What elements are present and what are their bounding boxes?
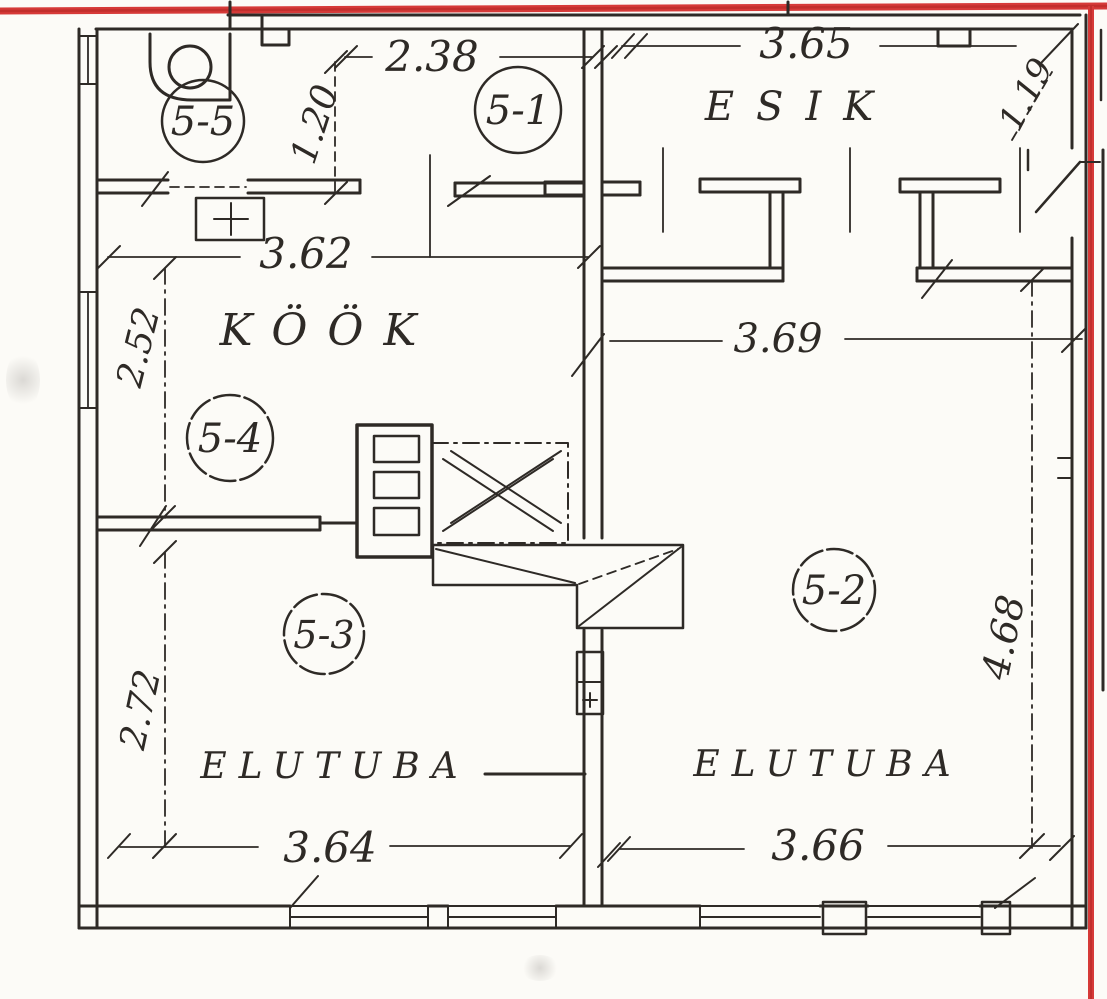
window-bottom-2 — [448, 906, 556, 928]
room-label-elutuba-left: ELUTUBA — [199, 746, 469, 787]
room-label-esik: ESIK — [704, 84, 895, 130]
hallway-partition-lines — [663, 148, 1020, 232]
flue-box-icon — [432, 443, 568, 543]
scan-border-lines — [0, 6, 1107, 999]
cropped-neighbor-walls — [1101, 30, 1103, 690]
room-number-badges — [162, 67, 875, 674]
dimension-room3-depth: 2.72 — [112, 666, 169, 754]
dimension-top-outer: 3.65 — [759, 19, 853, 68]
closet-icon-right — [900, 179, 1000, 268]
room-number-5-4: 5-4 — [198, 416, 262, 462]
dimension-wc-depth: 1.20 — [283, 80, 347, 169]
dimension-kitchen-width: 3.62 — [259, 229, 353, 278]
room-label-elutuba-right: ELUTUBA — [692, 744, 962, 785]
dimension-room2-width: 3.69 — [733, 316, 822, 362]
dimension-kitchen-depth: 2.52 — [109, 303, 168, 392]
window-bottom-3 — [700, 906, 820, 928]
dimension-corner-diagonal: 1.19 — [991, 52, 1062, 138]
table-icon — [433, 545, 683, 628]
window-bottom-4 — [868, 906, 980, 917]
dimension-bottom-left: 3.64 — [283, 823, 377, 872]
sink-icon — [196, 198, 264, 240]
floor-plan-scan: 2.38 3.65 1.20 1.19 3.62 2.52 3.69 2.72 … — [0, 0, 1107, 999]
room-number-5-1: 5-1 — [486, 88, 550, 134]
room-label-kook: KÖÖK — [219, 303, 437, 356]
dimension-top-inner: 2.38 — [384, 32, 479, 81]
room-number-5-2: 5-2 — [802, 568, 866, 614]
dimension-room2-depth: 4.68 — [973, 591, 1034, 684]
floor-plan-drawing: 2.38 3.65 1.20 1.19 3.62 2.52 3.69 2.72 … — [0, 0, 1107, 999]
radiator-flue-icon — [577, 652, 603, 714]
window-bottom-1 — [290, 906, 428, 928]
room-number-5-5: 5-5 — [171, 99, 235, 145]
dimension-bottom-right: 3.66 — [771, 821, 865, 870]
window-left-main — [79, 292, 97, 408]
room-number-5-3: 5-3 — [293, 613, 354, 657]
stove-icon — [357, 425, 432, 557]
window-left-top — [79, 36, 97, 84]
toilet-icon — [150, 34, 230, 100]
closet-icon-left — [700, 179, 800, 268]
window-symbols — [79, 36, 1010, 934]
